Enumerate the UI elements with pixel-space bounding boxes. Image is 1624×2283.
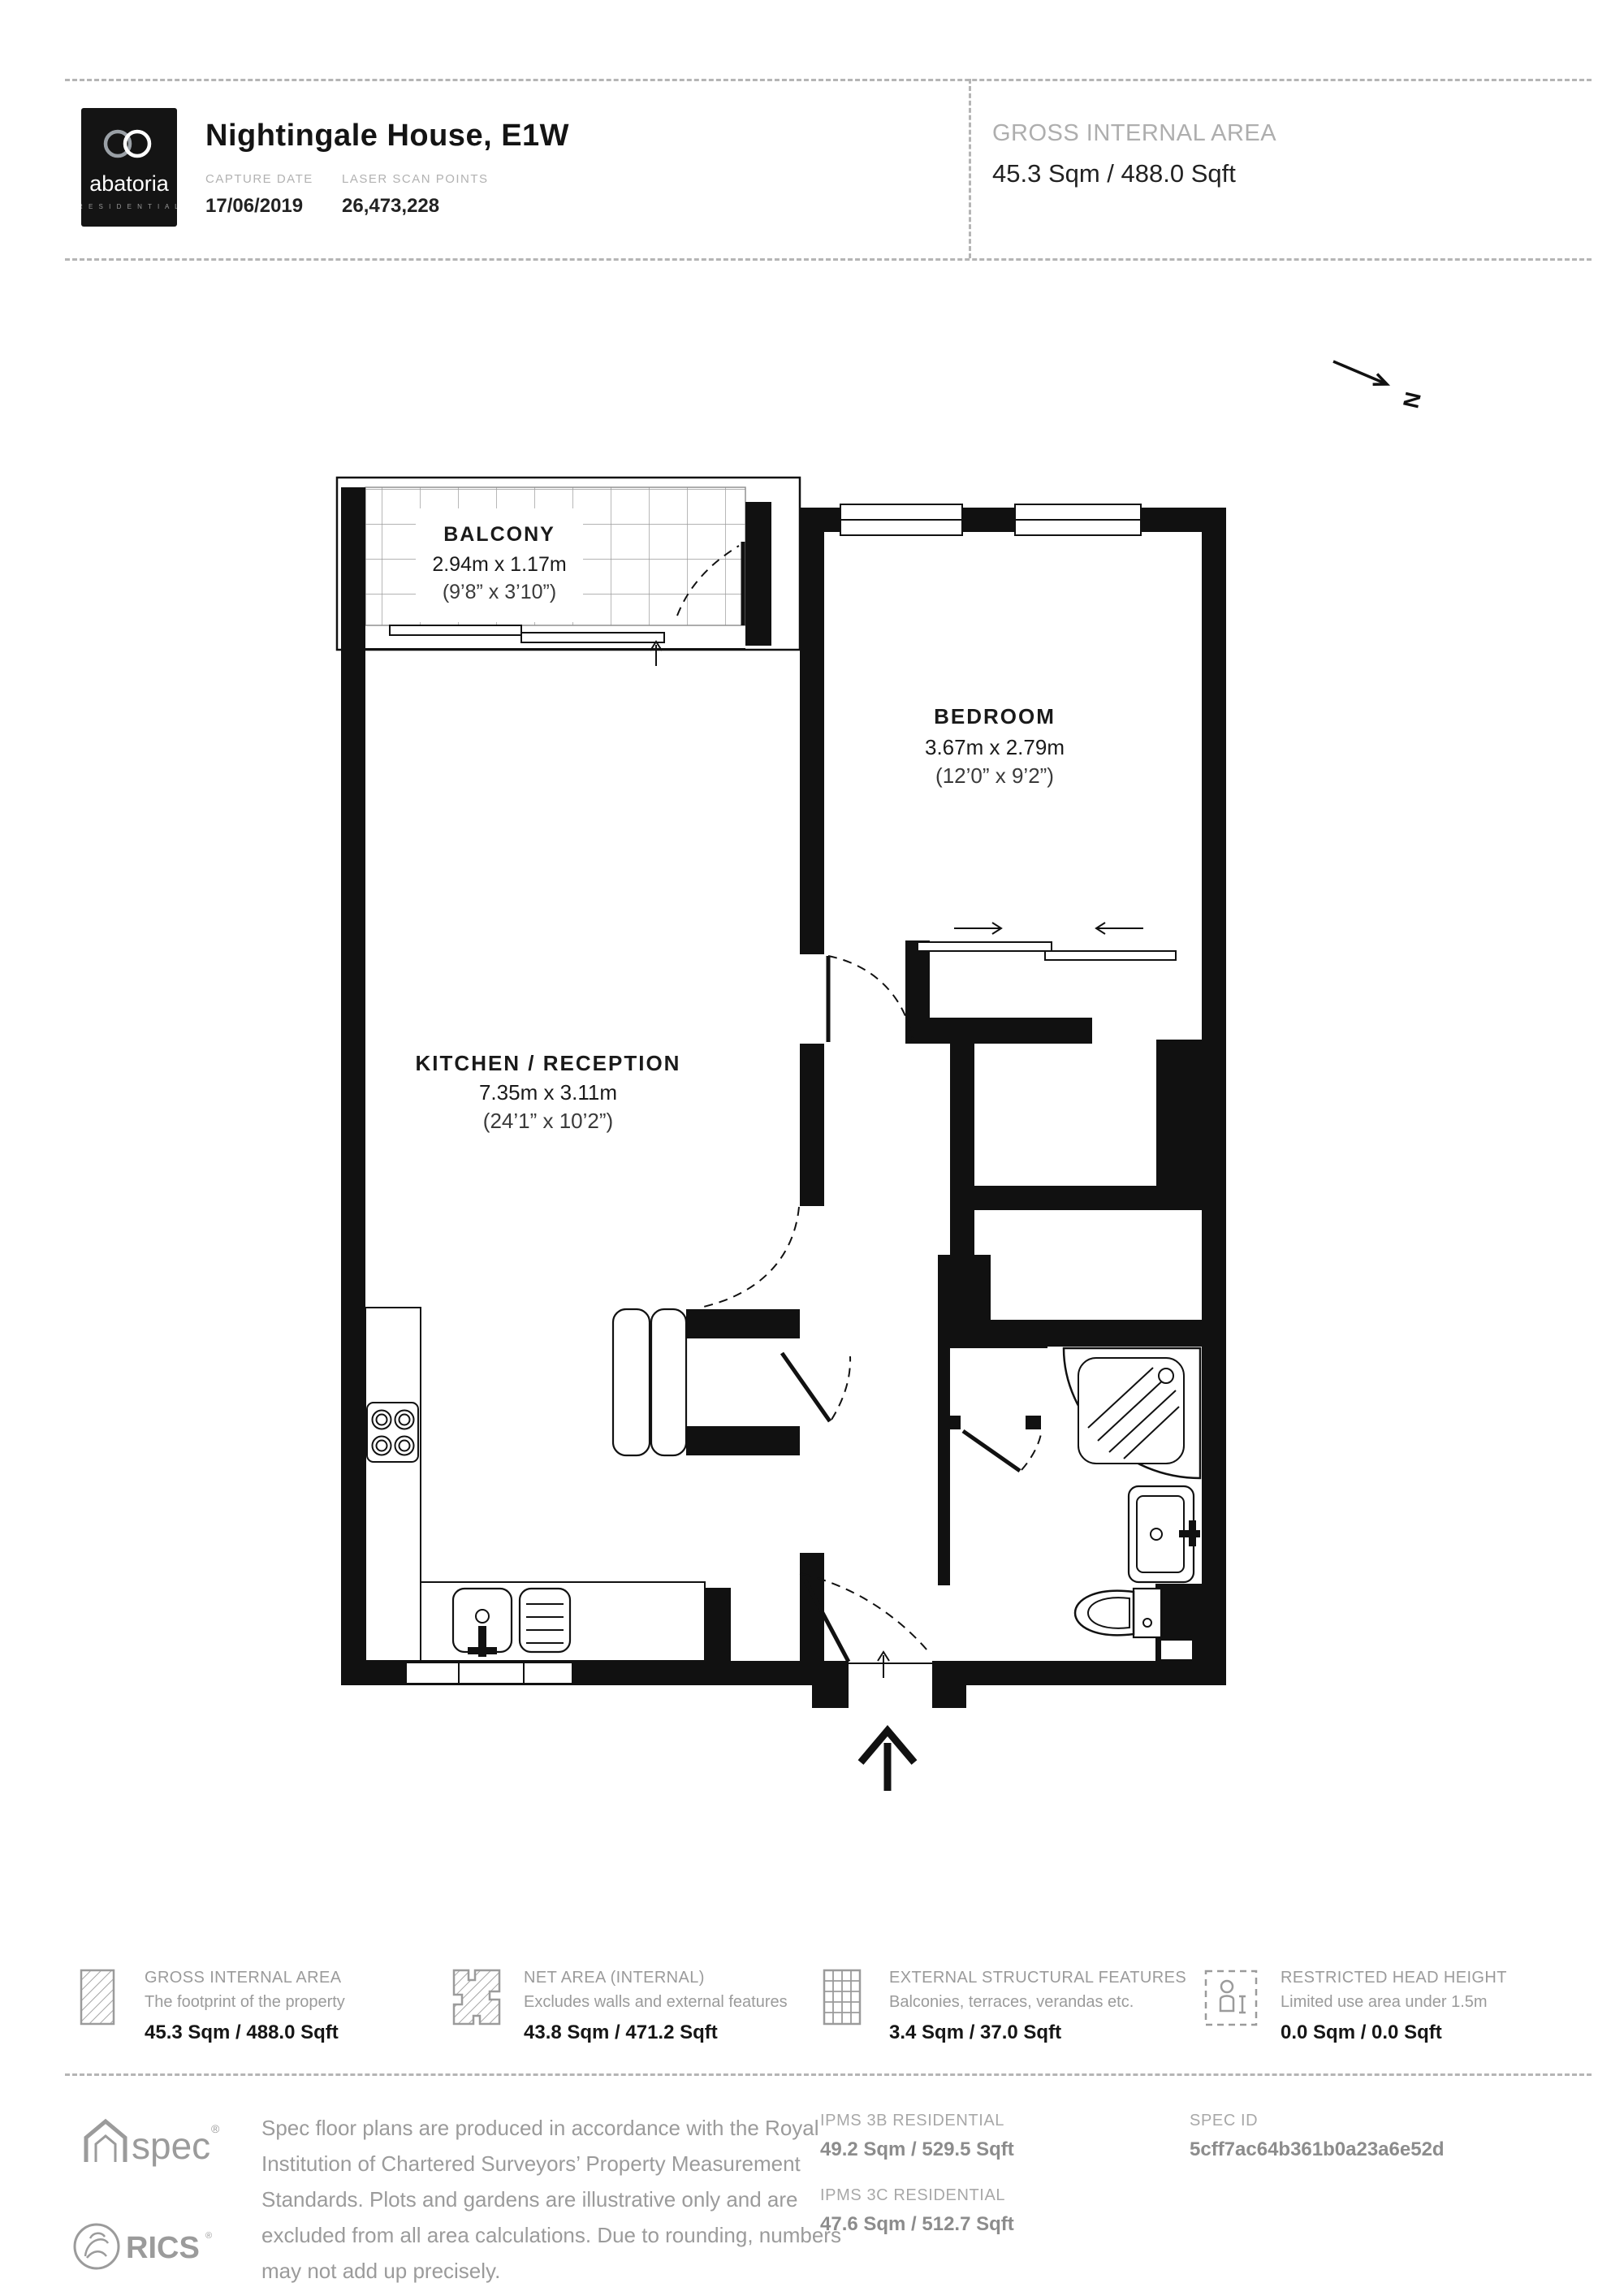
- north-letter: N: [1398, 390, 1426, 411]
- bathroom-door: [963, 1431, 1020, 1471]
- capture-date-label: CAPTURE DATE: [205, 172, 313, 186]
- kitchen-metric: 7.35m x 3.11m: [479, 1080, 617, 1105]
- balcony-imperial: (9’8” x 3’10”): [443, 581, 556, 603]
- legend-title: GROSS INTERNAL AREA: [145, 1969, 345, 1987]
- shower-icon: [1064, 1348, 1200, 1478]
- hob-icon: [367, 1403, 418, 1462]
- balcony-label: BALCONY: [443, 523, 555, 546]
- abatoria-logo-icon: abatoria R E S I D E N T I A L: [81, 108, 177, 227]
- legend-title: EXTERNAL STRUCTURAL FEATURES: [889, 1969, 1186, 1987]
- brand-name: abatoria: [89, 171, 170, 196]
- legend-gross-internal-area: GROSS INTERNAL AREA The footprint of the…: [71, 1969, 345, 2044]
- bedroom-imperial: (12’0” x 9’2”): [935, 763, 1054, 788]
- wardrobe-sliding-doors: [918, 923, 1176, 960]
- cupboard-door: [782, 1353, 830, 1421]
- capture-date-value: 17/06/2019: [205, 195, 303, 218]
- wall-notch: [1161, 1641, 1192, 1659]
- person-height-icon: [1204, 1969, 1259, 2027]
- threshold-arrows: [650, 642, 889, 1678]
- rics-logo: RICS ®: [69, 2214, 248, 2279]
- legend-title: RESTRICTED HEAD HEIGHT: [1281, 1969, 1507, 1987]
- legend-value: 0.0 Sqm / 0.0 Sqft: [1281, 2021, 1507, 2044]
- kitchen-window: [406, 1663, 572, 1684]
- spec-house-icon: [86, 2121, 125, 2162]
- ipms-3c-label: IPMS 3C RESIDENTIAL: [820, 2186, 1014, 2205]
- hatched-rect-icon: [71, 1969, 123, 2027]
- kitchen-label: KITCHEN / RECEPTION: [416, 1051, 681, 1075]
- spec-wordmark: spec: [132, 2125, 210, 2167]
- legend-value: 45.3 Sqm / 488.0 Sqft: [145, 2021, 345, 2044]
- grid-rect-icon: [816, 1969, 868, 2027]
- ipms-3c-block: IPMS 3C RESIDENTIAL 47.6 Sqm / 512.7 Sqf…: [820, 2186, 1014, 2236]
- rics-lion-icon: [75, 2225, 119, 2268]
- page-title: Nightingale House, E1W: [205, 119, 569, 153]
- registered-mark: ®: [211, 2122, 220, 2135]
- slide-direction-arrows-icon: [954, 923, 1143, 934]
- legend-subtitle: Excludes walls and external features: [524, 1993, 788, 2012]
- drainer-icon: [520, 1589, 570, 1652]
- kitchen-sink-icon: [453, 1589, 512, 1657]
- north-arrow: N: [1324, 337, 1470, 435]
- rics-registered-mark: ®: [205, 2231, 212, 2241]
- ipms-3b-label: IPMS 3B RESIDENTIAL: [820, 2112, 1014, 2130]
- legend-value: 3.4 Sqm / 37.0 Sqft: [889, 2021, 1186, 2044]
- hatched-plan-icon: [451, 1969, 503, 2027]
- legend-subtitle: Limited use area under 1.5m: [1281, 1993, 1507, 2012]
- spec-id-label: SPEC ID: [1190, 2112, 1445, 2130]
- disclaimer-text: Spec floor plans are produced in accorda…: [261, 2110, 859, 2283]
- bedroom-label: BEDROOM: [934, 704, 1056, 729]
- basin-icon: [1129, 1486, 1200, 1582]
- abatoria-logo: abatoria R E S I D E N T I A L: [81, 108, 177, 227]
- floorplan-page: abatoria R E S I D E N T I A L Nightinga…: [0, 0, 1624, 2283]
- legend-value: 43.8 Sqm / 471.2 Sqft: [524, 2021, 788, 2044]
- header-bottom-dashed-rule: [65, 258, 1592, 261]
- footer-dashed-rule: [65, 2073, 1592, 2076]
- laser-scan-value: 26,473,228: [342, 195, 439, 218]
- header-dashed-divider: [969, 79, 971, 258]
- top-dashed-rule: [65, 79, 1592, 81]
- rics-wordmark: RICS: [126, 2231, 200, 2265]
- balcony-metric: 2.94m x 1.17m: [432, 553, 566, 576]
- balcony-sliding-door: [365, 625, 745, 649]
- legend-net-area: NET AREA (INTERNAL) Excludes walls and e…: [451, 1969, 788, 2044]
- floorplan-drawing: BALCONY 2.94m x 1.17m (9’8” x 3’10”) BED…: [309, 451, 1250, 1803]
- ipms-3c-value: 47.6 Sqm / 512.7 Sqft: [820, 2213, 1014, 2236]
- brand-sub: R E S I D E N T I A L: [81, 203, 177, 210]
- legend-subtitle: The footprint of the property: [145, 1993, 345, 2012]
- legend-restricted-head-height: RESTRICTED HEAD HEIGHT Limited use area …: [1204, 1969, 1507, 2044]
- walls: [341, 487, 1226, 1708]
- ipms-3b-value: 49.2 Sqm / 529.5 Sqft: [820, 2138, 1014, 2161]
- gross-internal-area-value: 45.3 Sqm / 488.0 Sqft: [992, 159, 1236, 188]
- kitchen-counter-left: [365, 1308, 421, 1661]
- laser-scan-label: LASER SCAN POINTS: [342, 172, 489, 186]
- hall-cupboard: [613, 1309, 686, 1455]
- gross-internal-area-label: GROSS INTERNAL AREA: [992, 120, 1276, 147]
- spec-id-block: SPEC ID 5cff7ac64b361b0a23a6e52d: [1190, 2112, 1445, 2161]
- legend-subtitle: Balconies, terraces, verandas etc.: [889, 1993, 1186, 2012]
- entrance-arrow-icon: [861, 1731, 914, 1791]
- kitchen-imperial: (24’1” x 10’2”): [483, 1109, 613, 1133]
- spec-id-value: 5cff7ac64b361b0a23a6e52d: [1190, 2138, 1445, 2161]
- spec-logo: spec ®: [75, 2112, 237, 2175]
- bedroom-metric: 3.67m x 2.79m: [925, 735, 1065, 759]
- toilet-icon: [1075, 1589, 1161, 1637]
- legend-title: NET AREA (INTERNAL): [524, 1969, 788, 1987]
- ipms-3b-block: IPMS 3B RESIDENTIAL 49.2 Sqm / 529.5 Sqf…: [820, 2112, 1014, 2161]
- legend-external-features: EXTERNAL STRUCTURAL FEATURES Balconies, …: [816, 1969, 1186, 2044]
- balcony-area: [337, 478, 800, 650]
